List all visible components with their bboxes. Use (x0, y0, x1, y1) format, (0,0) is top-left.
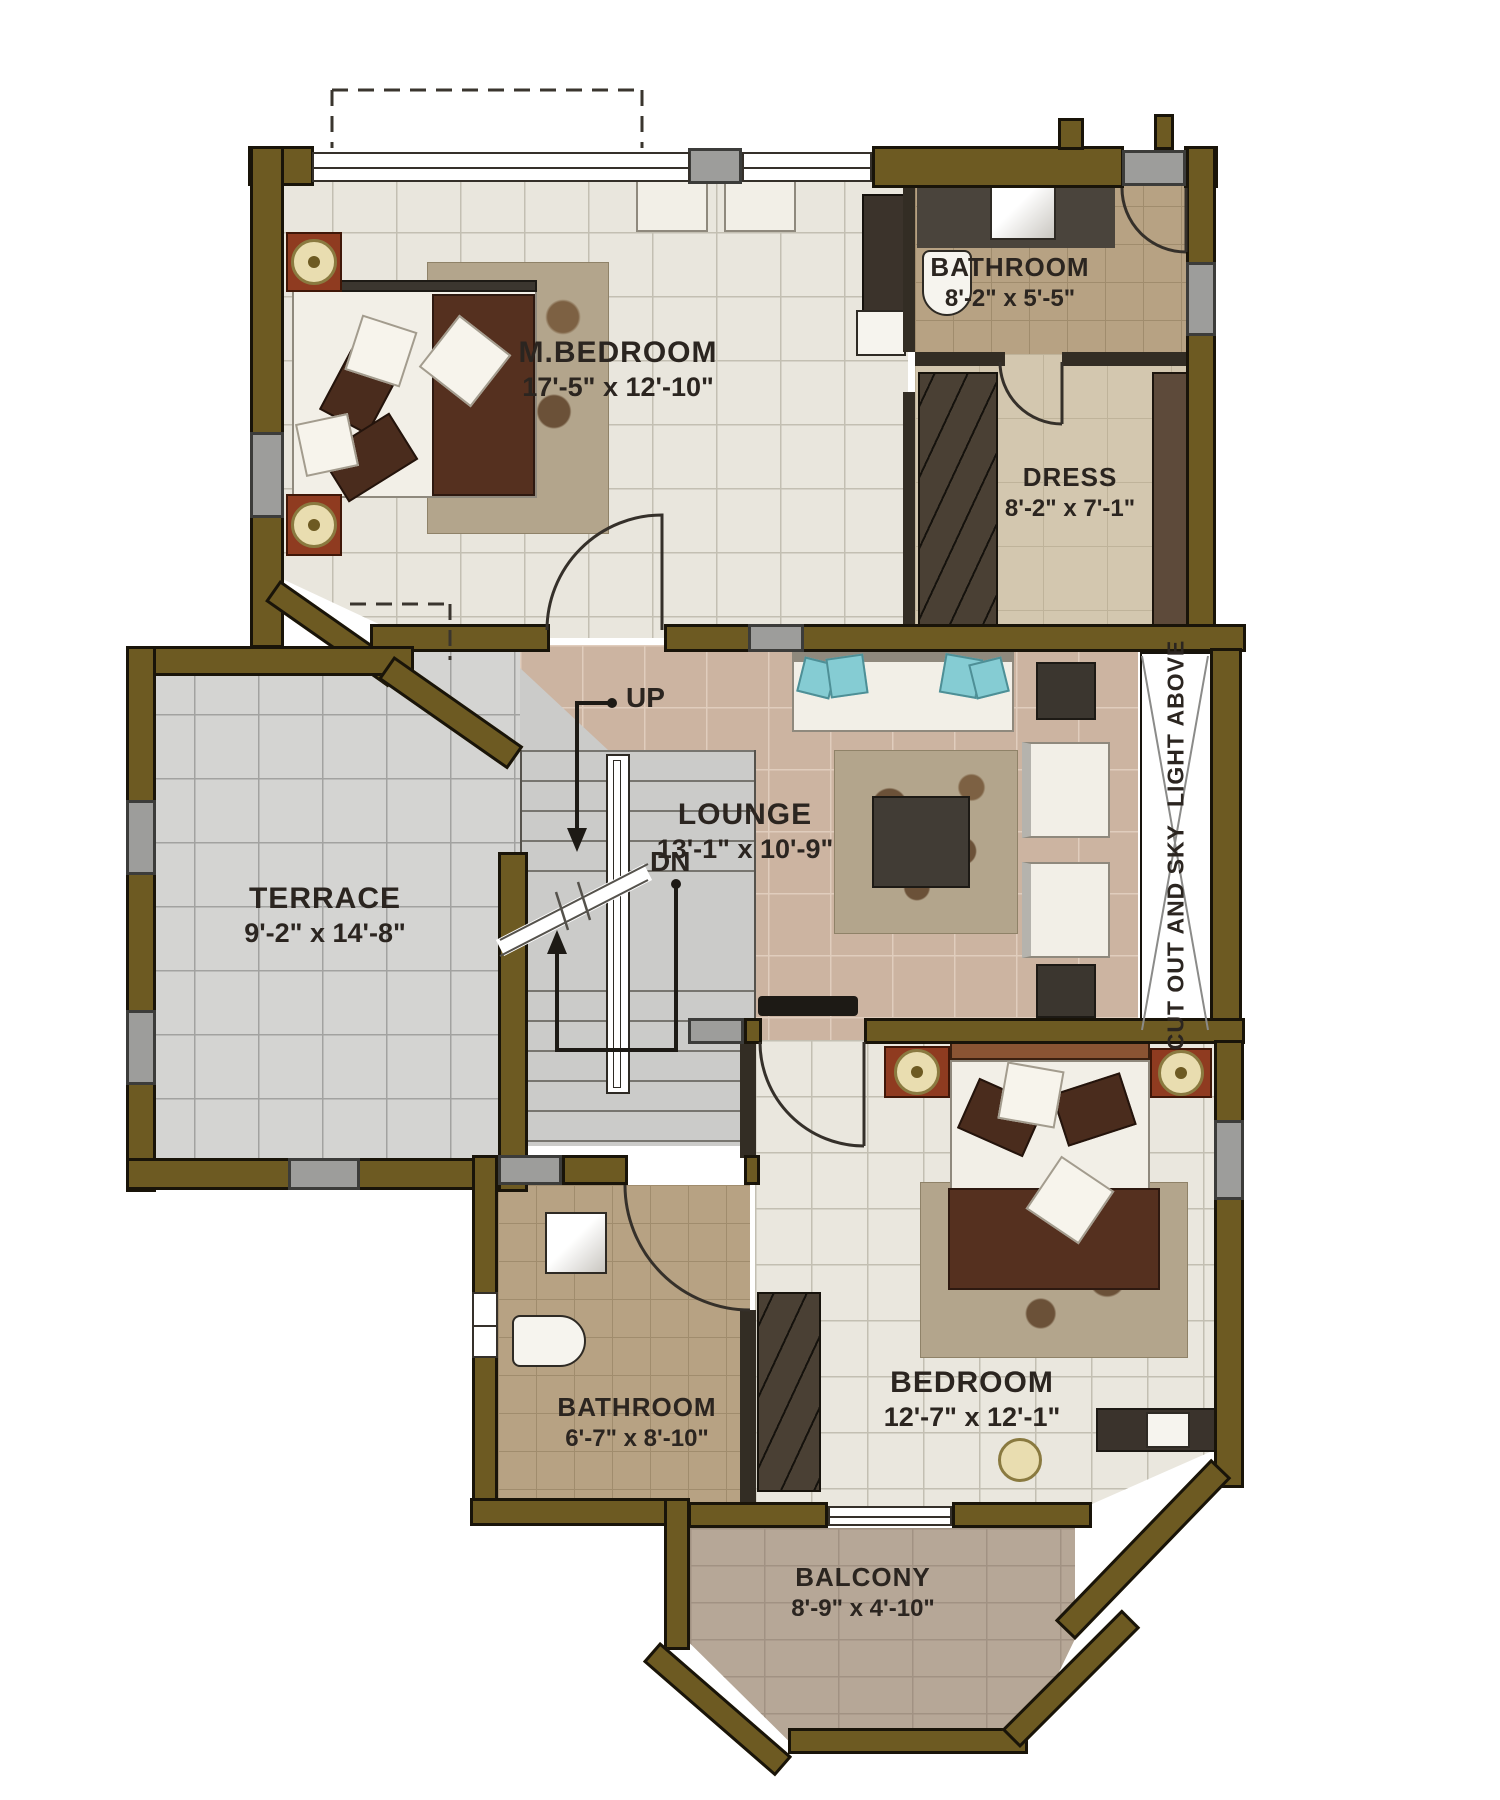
lamp-icon (291, 239, 337, 285)
stair-label-down: DN (650, 846, 690, 878)
lamp-icon (894, 1049, 940, 1095)
wall-segment (952, 1502, 1092, 1528)
lamp-icon (291, 502, 337, 548)
nightstand-icon (884, 1046, 950, 1098)
wall-segment (1186, 146, 1216, 268)
wall-segment (1058, 118, 1084, 150)
stairs-landing (522, 896, 754, 962)
window (828, 1506, 952, 1526)
wall-segment-thin (740, 1310, 756, 1502)
coffee-table-icon (872, 796, 970, 888)
wall-segment-thin (915, 352, 1005, 366)
skylight-note: CUT OUT AND SKY LIGHT ABOVE (1163, 640, 1190, 1051)
wall-segment (126, 646, 414, 676)
wall-segment (498, 852, 528, 1192)
wardrobe-icon (757, 1292, 821, 1492)
nightstand-icon (1150, 1048, 1212, 1098)
wall-segment (1214, 1040, 1244, 1488)
dresser-icon (856, 310, 906, 356)
sink-icon (545, 1212, 607, 1274)
wall-column (126, 800, 156, 875)
wardrobe-icon (918, 372, 998, 634)
wall-column (1186, 262, 1216, 336)
wall-column (250, 432, 284, 518)
room-label-bathroom-top: BATHROOM 8'-2" x 5'-5" (930, 252, 1089, 313)
room-label-balcony: BALCONY 8'-9" x 4'-10" (791, 1562, 935, 1623)
tv-icon (1146, 1412, 1190, 1448)
stair-railing (606, 754, 630, 1094)
wall-segment (744, 1018, 762, 1044)
room-dims: 12'-7" x 12'-1" (884, 1402, 1061, 1433)
planter-icon (998, 1438, 1042, 1482)
room-dims: 8'-2" x 7'-1" (1005, 495, 1135, 523)
wall-column (748, 624, 804, 652)
wall-segment (688, 1502, 828, 1528)
wall-segment (744, 1155, 760, 1185)
room-dims: 8'-9" x 4'-10" (791, 1595, 935, 1623)
window (742, 152, 872, 182)
armchair-icon (1022, 862, 1110, 958)
room-name: M.BEDROOM (519, 336, 718, 370)
wall-column (498, 1155, 562, 1185)
wall-segment (1210, 648, 1242, 1044)
room-dims: 8'-2" x 5'-5" (930, 285, 1089, 313)
wall-segment-thin (740, 1044, 756, 1158)
shower-icon (990, 182, 1056, 240)
room-label-dress: DRESS 8'-2" x 7'-1" (1005, 462, 1135, 523)
wall-column (688, 1018, 744, 1044)
side-table-icon (1036, 662, 1096, 720)
pillow-icon (295, 413, 359, 477)
wall-segment (788, 1728, 1028, 1754)
room-label-master-bedroom: M.BEDROOM 17'-5" x 12'-10" (519, 336, 718, 403)
headboard-icon (950, 1042, 1150, 1060)
wall-segment (126, 646, 156, 1192)
window (472, 1292, 498, 1358)
wall-segment (470, 1498, 675, 1526)
pillow-icon (997, 1061, 1064, 1128)
wall-segment (1186, 330, 1216, 652)
toilet-icon (512, 1315, 586, 1367)
side-table-icon (1036, 964, 1096, 1018)
room-dims: 9'-2" x 14'-8" (244, 918, 406, 949)
skylight-note-line2: LIGHT ABOVE (1163, 640, 1190, 807)
wall-column (1122, 150, 1186, 186)
wall-segment (872, 146, 1124, 188)
lamp-icon (1158, 1050, 1204, 1096)
wall-segment (250, 146, 284, 438)
wall-segment (664, 1498, 690, 1650)
room-label-bedroom: BEDROOM 12'-7" x 12'-1" (884, 1366, 1061, 1433)
room-label-bathroom-bottom: BATHROOM 6'-7" x 8'-10" (557, 1392, 716, 1453)
floor-plan: M.BEDROOM 17'-5" x 12'-10" BATHROOM 8'-2… (0, 0, 1500, 1800)
tv-console-icon (758, 996, 858, 1016)
room-name: BEDROOM (884, 1366, 1061, 1400)
wall-segment-thin (903, 168, 915, 352)
wall-column (288, 1158, 360, 1190)
wall-column (1214, 1120, 1244, 1200)
room-dims: 17'-5" x 12'-10" (519, 372, 718, 403)
skylight-note-line1: CUT OUT AND SKY (1163, 824, 1189, 1050)
room-name: BALCONY (791, 1562, 935, 1593)
room-label-terrace: TERRACE 9'-2" x 14'-8" (244, 882, 406, 949)
room-name: BATHROOM (557, 1392, 716, 1423)
room-name: LOUNGE (657, 798, 834, 832)
nightstand-icon (286, 232, 342, 292)
armchair-icon (1022, 742, 1110, 838)
nightstand-icon (286, 494, 342, 556)
stair-label-up: UP (626, 682, 665, 714)
window (312, 152, 690, 182)
wall-column (688, 148, 742, 184)
room-name: BATHROOM (930, 252, 1089, 283)
wall-segment (562, 1155, 628, 1185)
room-name: TERRACE (244, 882, 406, 916)
wall-segment-thin (903, 392, 915, 630)
room-dims: 6'-7" x 8'-10" (557, 1425, 716, 1453)
sofa-pillow-icon (825, 654, 868, 699)
wall-column (126, 1010, 156, 1085)
wall-segment (1154, 114, 1174, 150)
room-name: DRESS (1005, 462, 1135, 493)
